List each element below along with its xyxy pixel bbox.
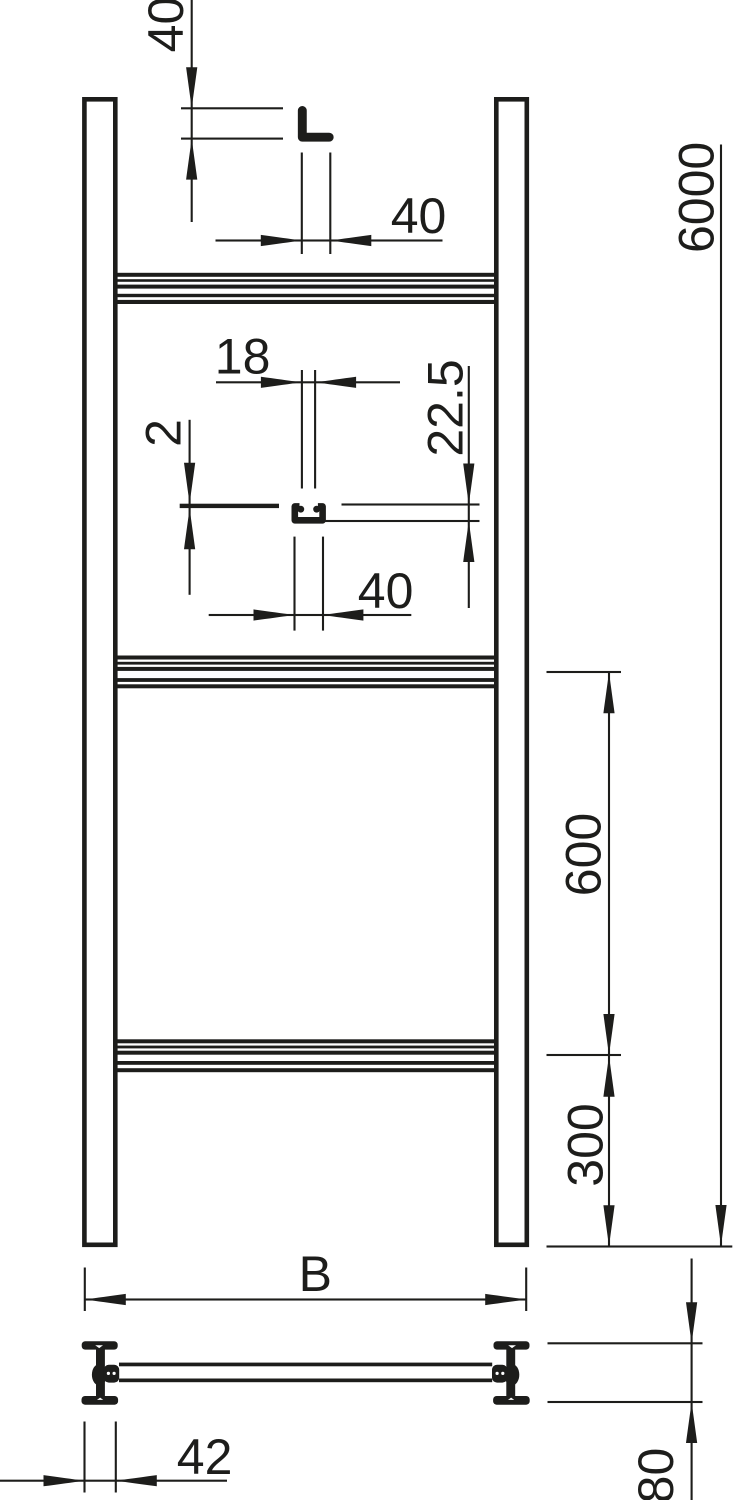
svg-text:40: 40 bbox=[358, 563, 414, 619]
svg-text:2: 2 bbox=[136, 419, 192, 447]
svg-text:22.5: 22.5 bbox=[417, 359, 473, 456]
svg-text:6000: 6000 bbox=[668, 142, 724, 253]
svg-text:B: B bbox=[299, 1246, 332, 1302]
svg-text:600: 600 bbox=[556, 813, 612, 896]
svg-text:300: 300 bbox=[558, 1103, 614, 1186]
svg-text:40: 40 bbox=[391, 188, 447, 244]
svg-text:42: 42 bbox=[177, 1429, 233, 1485]
svg-text:80: 80 bbox=[628, 1448, 684, 1500]
svg-text:40: 40 bbox=[138, 0, 194, 52]
svg-text:18: 18 bbox=[215, 329, 271, 385]
